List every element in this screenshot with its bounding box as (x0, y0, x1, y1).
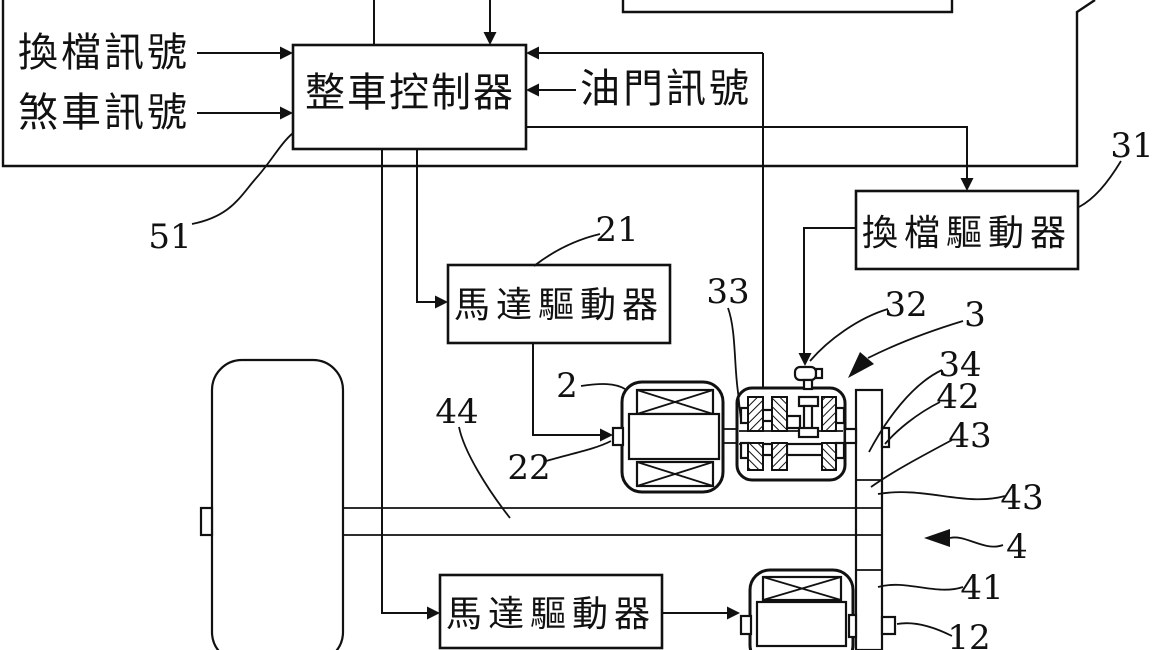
arrowhead-throttle-signal (526, 84, 539, 97)
clutch-bottom-bar (799, 428, 818, 437)
leader-22 (546, 441, 611, 461)
motor-lower-rotor (757, 602, 846, 646)
final-drive-plate (856, 390, 882, 650)
arrowhead-brake-signal (280, 107, 293, 120)
motor-driver-lower-label: 馬達驅動器 (446, 594, 656, 635)
shaft-connector (787, 416, 800, 428)
motor-driver-upper-block: 馬達驅動器 (448, 265, 670, 343)
wire-controller-to-motor-driver-lower (382, 149, 428, 613)
ref-33: 33 (706, 272, 749, 312)
motor-lower (741, 570, 856, 650)
leader-43b (878, 492, 1005, 499)
ref-43a: 43 (948, 416, 991, 456)
gear-disc (772, 397, 787, 431)
arrowhead-into-motor-upper (600, 429, 613, 442)
ref-31: 31 (1110, 126, 1153, 166)
leader-12 (897, 623, 952, 636)
arrowhead-into-motor-driver-lower (427, 607, 440, 620)
ref-12: 12 (947, 618, 990, 650)
bearing-tab (836, 443, 844, 458)
arrowhead-into-shift-driver (961, 178, 974, 191)
gearbox-output-shaft (845, 429, 856, 443)
top-partial-box (623, 0, 952, 12)
leader-44 (459, 427, 510, 518)
system-boundary (3, 0, 1095, 166)
gear-disc (748, 397, 763, 431)
ref-4: 4 (1006, 527, 1028, 567)
wire-shift-driver-to-actuator (804, 228, 856, 354)
ref-32: 32 (884, 285, 927, 325)
arrowhead-into-actuator (799, 353, 812, 366)
motor-upper-input-shaft-tab (613, 428, 623, 445)
motor-upper-rotor (629, 414, 719, 459)
actuator-stem (804, 380, 812, 389)
leader-33 (728, 308, 741, 420)
gear-disc (772, 443, 787, 470)
bold-arrow-3 (848, 352, 874, 378)
motor-lower-input-shaft-tab (741, 616, 751, 634)
ref-42: 42 (936, 377, 979, 417)
ref-41: 41 (960, 568, 1003, 608)
wheel-axle-stub (201, 508, 212, 535)
motor-lower-output-stub (849, 615, 856, 637)
actuator-knob-nub (816, 369, 822, 378)
leader-2 (581, 384, 625, 389)
arrowhead-shift-signal (280, 47, 293, 60)
motor-driver-lower-block: 馬達驅動器 (440, 575, 662, 648)
shift-signal-label: 換檔訊號 (18, 30, 190, 76)
ref-51: 51 (148, 217, 191, 257)
gearbox (737, 388, 856, 480)
arrowhead-feedback (526, 47, 539, 60)
arrowhead-into-motor-driver-upper (435, 296, 448, 309)
patent-figure: 整車控制器 換檔驅動器 馬達驅動器 馬達驅動器 換檔訊號 煞車訊號 油門訊號 (0, 0, 1170, 650)
leader-31 (1079, 161, 1121, 207)
shaft-connector (787, 444, 823, 455)
ref-44: 44 (435, 392, 478, 432)
wire-controller-to-motor-driver-upper (417, 149, 436, 302)
wheel (201, 360, 343, 650)
clutch-top-bar (799, 397, 818, 406)
wheel-tire-outline (212, 360, 343, 650)
wire-controller-to-shift-driver (526, 127, 967, 178)
throttle-signal-label: 油門訊號 (580, 66, 752, 112)
ref-43b: 43 (1000, 478, 1043, 518)
actuator-knob (795, 367, 816, 380)
ref-22: 22 (507, 448, 550, 488)
arrowhead-into-motor-lower (727, 607, 740, 620)
gear-disc (822, 397, 836, 431)
arrowhead-top-into-controller (484, 32, 497, 45)
motor-upper (613, 382, 737, 492)
ref-2: 2 (556, 366, 578, 406)
plate-tab-lower (882, 617, 895, 634)
leader-21 (534, 234, 600, 266)
leader-42 (885, 402, 940, 444)
bold-arrow-4 (924, 529, 950, 547)
controller-block: 整車控制器 (293, 45, 526, 149)
motor-driver-upper-label: 馬達驅動器 (454, 285, 664, 326)
leader-41 (878, 585, 963, 590)
clutch-stem (804, 406, 812, 429)
bearing-tab (836, 408, 844, 423)
ref-3: 3 (964, 295, 986, 335)
leader-4 (950, 537, 1003, 546)
gear-disc (748, 443, 763, 470)
leader-51 (192, 133, 293, 224)
outer-boundary-line (3, 0, 1095, 166)
gear-disc (822, 443, 836, 470)
brake-signal-label: 煞車訊號 (18, 90, 190, 136)
shift-actuator (795, 367, 822, 389)
shift-driver-block: 換檔驅動器 (856, 191, 1078, 269)
controller-label: 整車控制器 (305, 70, 515, 116)
shift-driver-label: 換檔驅動器 (862, 213, 1072, 254)
ref-21: 21 (595, 210, 638, 250)
